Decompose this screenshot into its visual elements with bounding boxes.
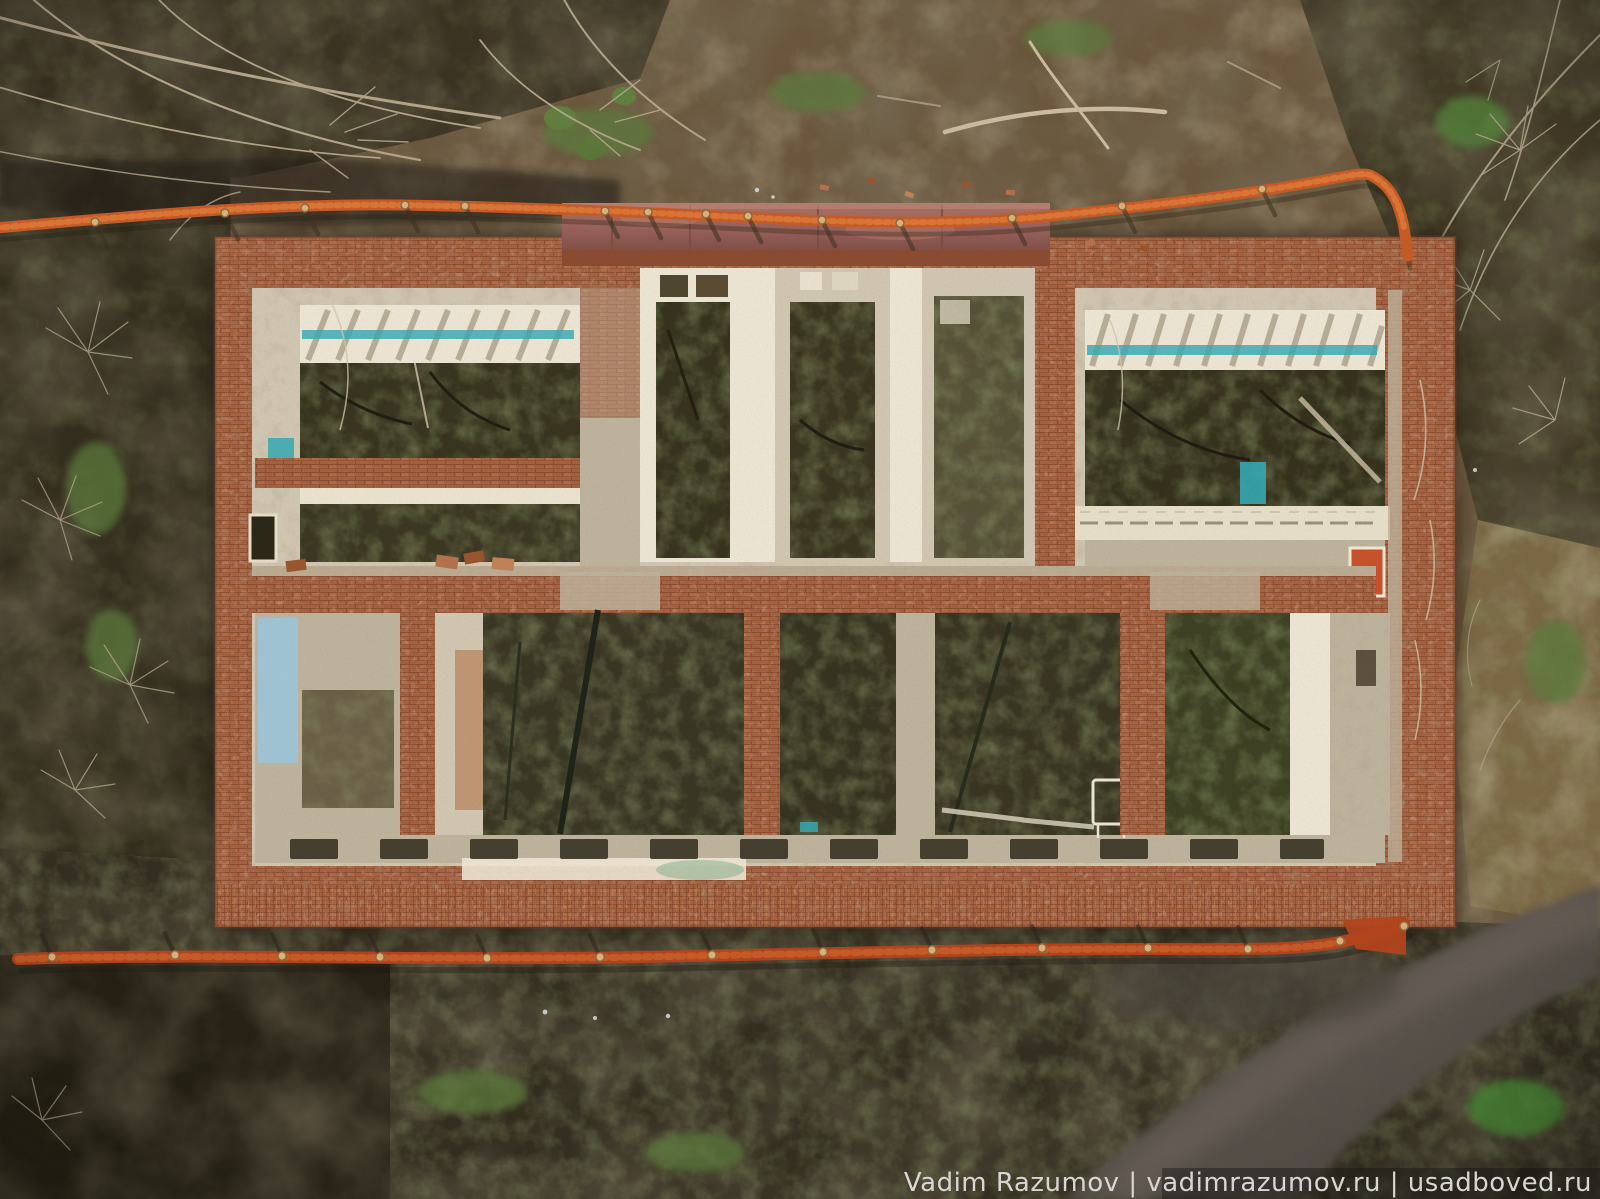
- photo-stage: Vadim Razumov | vadimrazumov.ru | usadbo…: [0, 0, 1600, 1199]
- watermark-text: Vadim Razumov | vadimrazumov.ru | usadbo…: [904, 1168, 1592, 1198]
- watermark: Vadim Razumov | vadimrazumov.ru | usadbo…: [904, 1168, 1600, 1199]
- aerial-photo-ruined-manor: Vadim Razumov | vadimrazumov.ru | usadbo…: [0, 0, 1600, 1199]
- vignette: [0, 0, 1600, 1199]
